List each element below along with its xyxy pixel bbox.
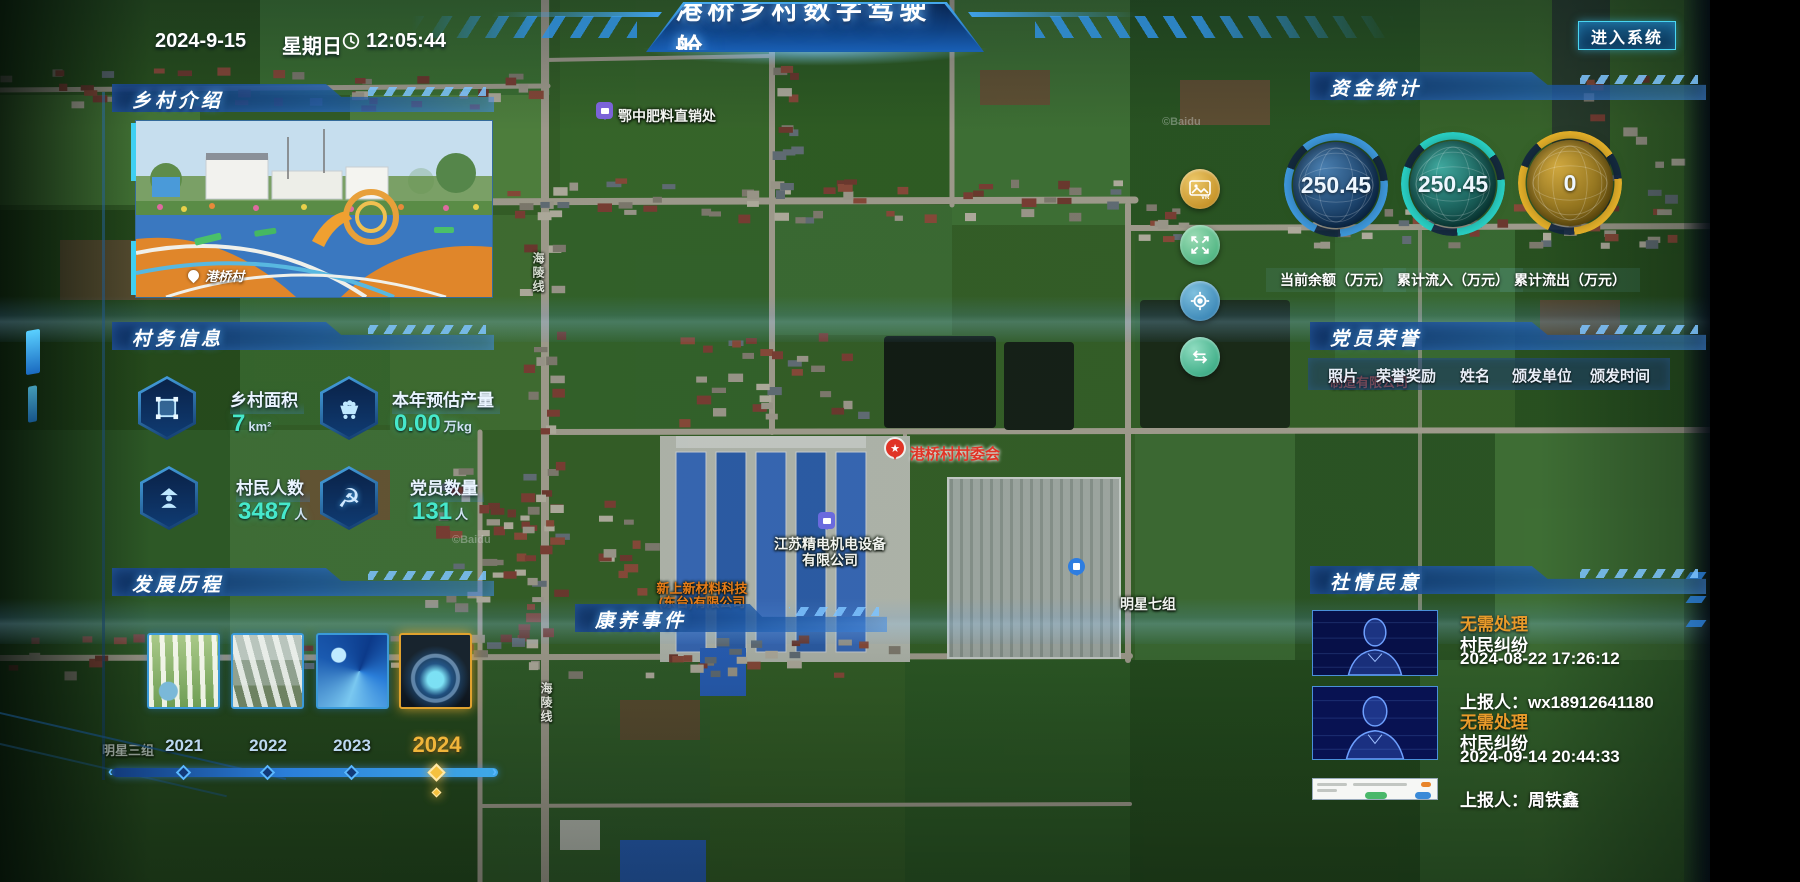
opinion-reporter: 上报人：周铁鑫 [1460,786,1579,811]
map-label-road-2: 海陵线 [538,682,555,724]
switch-view-icon[interactable] [1180,337,1220,377]
banner-wing-right [968,12,1140,17]
timeline-next-arrow[interactable]: › [492,763,497,780]
opinion-attachment-thumb[interactable] [1312,778,1438,800]
stat-value: 3487人 [238,498,307,526]
column-issuer: 颁发单位 [1512,365,1572,386]
gauge-inflow: 250.45 [1401,132,1505,236]
gauge-outflow: 0 [1518,131,1622,235]
expand-icon[interactable] [1180,225,1220,265]
year-2022[interactable]: 2022 [249,736,287,756]
location-pin-icon [186,268,202,284]
timeline-thumb-2024[interactable] [399,633,472,709]
timeline-thumb-2023[interactable] [316,633,389,709]
header-stripes [368,87,486,96]
party-icon: ☭ [320,466,378,530]
year-2021[interactable]: 2021 [165,736,203,756]
map-label-fertilizer: 鄂中肥料直销处 [618,106,716,126]
panel-header-health-events: 康养事件 [575,604,887,632]
stat-value: 7km² [232,410,271,438]
map-label-group7: 明星七组 [1120,594,1176,614]
vr-image-button[interactable]: VR [1180,169,1220,209]
weekday-text: 星期日 [282,30,342,59]
date-text: 2024-9-15 [155,30,246,53]
panel-header-funds: 资金统计 [1310,72,1706,100]
stat-value: 131人 [412,498,468,526]
year-2024[interactable]: 2024 [413,732,462,758]
column-photo: 照片 [1328,365,1358,386]
left-frame-accent [26,329,40,375]
timeline-prev-arrow[interactable]: ‹ [108,763,113,780]
header-stripes [368,571,486,580]
panel-header-village-info: 村务信息 [112,322,494,350]
year-2023[interactable]: 2023 [333,736,371,756]
villager-icon [140,466,198,530]
map-label-road-1: 海陵线 [530,252,547,294]
map-watermark: ©Baidu [452,534,491,546]
gauge-balance: 250.45 [1284,133,1388,237]
photo-caption: 港桥村 [188,266,244,285]
time-text: 12:05:44 [366,30,446,53]
thumb-green-pill [1365,792,1387,799]
cart-icon [320,376,378,440]
panel-header-intro: 乡村介绍 [112,84,494,112]
opinion-time: 2024-09-14 20:44:33 [1460,747,1620,767]
left-frame-accent [28,385,37,423]
svg-text:VR: VR [1201,195,1210,201]
header-stripes [789,607,879,616]
honor-table-header: 照片 荣誉奖励 姓名 颁发单位 颁发时间 [1308,358,1670,390]
enter-system-button[interactable]: 进入系统 [1578,21,1676,50]
timeline-thumb-2021[interactable] [147,633,220,709]
opinion-time: 2024-08-22 17:26:12 [1460,649,1620,669]
opinion-avatar-1[interactable] [1312,610,1438,676]
screen-black-strip [1710,0,1800,882]
clock-icon [342,32,360,50]
village-photo[interactable]: 港桥村 [135,120,493,298]
poi-marker-icon [1068,558,1085,575]
header-stripes [1580,325,1698,334]
area-icon [138,376,196,440]
column-name: 姓名 [1460,365,1490,386]
stat-value: 0.00万kg [394,410,472,438]
panel-header-development: 发展历程 [112,568,494,596]
store-marker-icon [596,102,613,119]
thumb-orange-dot [1421,782,1431,787]
factory-marker-icon [818,512,835,529]
header-slashes-right [1035,16,1395,38]
title-banner: « 港桥乡村数字驾驶舱 » [646,2,984,52]
header-stripes [1580,75,1698,84]
map-label-company1: 江苏精电机电设备有限公司 [770,536,890,568]
locate-icon[interactable] [1180,281,1220,321]
column-award: 荣誉奖励 [1376,365,1436,386]
column-date: 颁发时间 [1590,365,1650,386]
opinion-avatar-2[interactable] [1312,686,1438,760]
village-committee-pin-icon: ★ [886,439,904,457]
dashboard-root: 鄂中肥料直销处 ★ 港桥村村委会 江苏精电机电设备有限公司 新上新材料科技(东台… [0,0,1800,882]
gauge-label-outflow: 累计流出（万元） [1500,268,1640,292]
panel-header-party-honor: 党员荣誉 [1310,322,1706,350]
header-stripes [1580,569,1698,578]
panel-header-public-opinion: 社情民意 [1310,566,1706,594]
banner-wing-left [490,12,662,17]
timeline-thumb-2022[interactable] [231,633,304,709]
thumb-blue-pill [1415,792,1431,799]
map-watermark: ©Baidu [1162,116,1201,128]
header-stripes [368,325,486,334]
map-label-committee: 港桥村村委会 [910,443,1000,464]
